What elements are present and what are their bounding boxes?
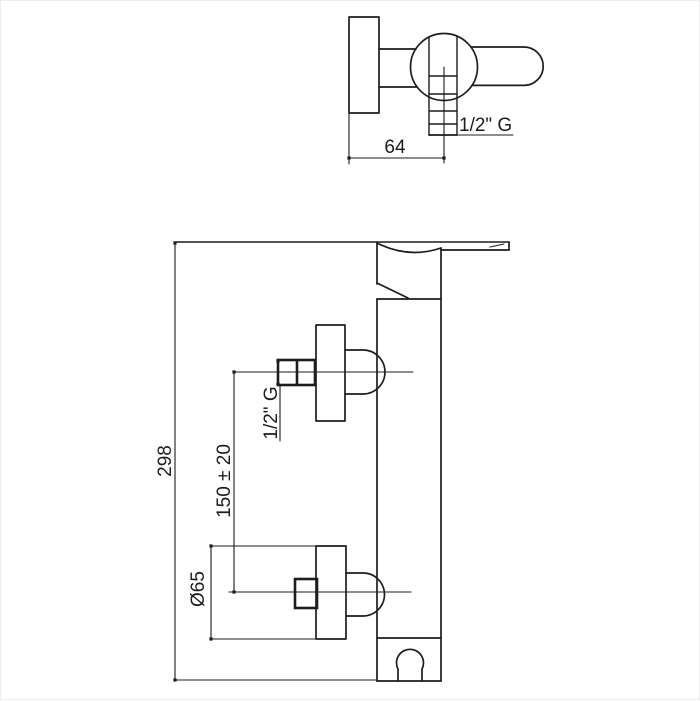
mixer-body-column bbox=[377, 248, 441, 681]
shower-mixer-drawing: 64 1/2" G bbox=[1, 1, 700, 701]
lever-side-view bbox=[441, 242, 509, 250]
dim-tick bbox=[276, 359, 279, 362]
dimension-298: 298 bbox=[155, 241, 177, 681]
top-view: 64 1/2" G bbox=[347, 17, 543, 164]
shower-holder-cutout bbox=[397, 649, 424, 681]
upper-flange bbox=[316, 325, 345, 421]
dim-tick bbox=[347, 156, 350, 159]
dim-label-298: 298 bbox=[155, 445, 176, 477]
dim-tick bbox=[276, 382, 279, 385]
front-view: 1/2" G 150 ± 20 298 bbox=[155, 241, 509, 681]
shower-holder-bracket bbox=[377, 638, 441, 681]
wall-plate-top-view bbox=[349, 17, 379, 113]
lower-nipple bbox=[295, 579, 317, 608]
outlet-pipe-top-view bbox=[429, 36, 457, 135]
dimension-64: 64 bbox=[347, 113, 445, 164]
dim-tick bbox=[173, 241, 176, 244]
thread-label-top: 1/2" G bbox=[457, 115, 513, 136]
thread-label-side: 1/2" G bbox=[261, 385, 282, 441]
mixer-cap bbox=[377, 243, 441, 299]
thread-label-top-text: 1/2" G bbox=[459, 115, 512, 136]
dimension-150: 150 ± 20 bbox=[214, 370, 236, 593]
dim-tick bbox=[442, 156, 445, 159]
lower-inlet-fitting bbox=[229, 546, 411, 639]
dim-label-65: Ø65 bbox=[188, 571, 209, 607]
lower-union-nut bbox=[346, 573, 385, 616]
dim-label-150: 150 ± 20 bbox=[214, 444, 235, 518]
dim-label-64: 64 bbox=[384, 137, 406, 158]
dim-tick bbox=[232, 370, 235, 373]
dim-tick bbox=[209, 544, 212, 547]
lever-top-view bbox=[471, 47, 543, 85]
dim-tick bbox=[209, 637, 212, 640]
technical-drawing-canvas: 64 1/2" G bbox=[0, 0, 700, 700]
thread-label-side-text: 1/2" G bbox=[261, 386, 282, 439]
